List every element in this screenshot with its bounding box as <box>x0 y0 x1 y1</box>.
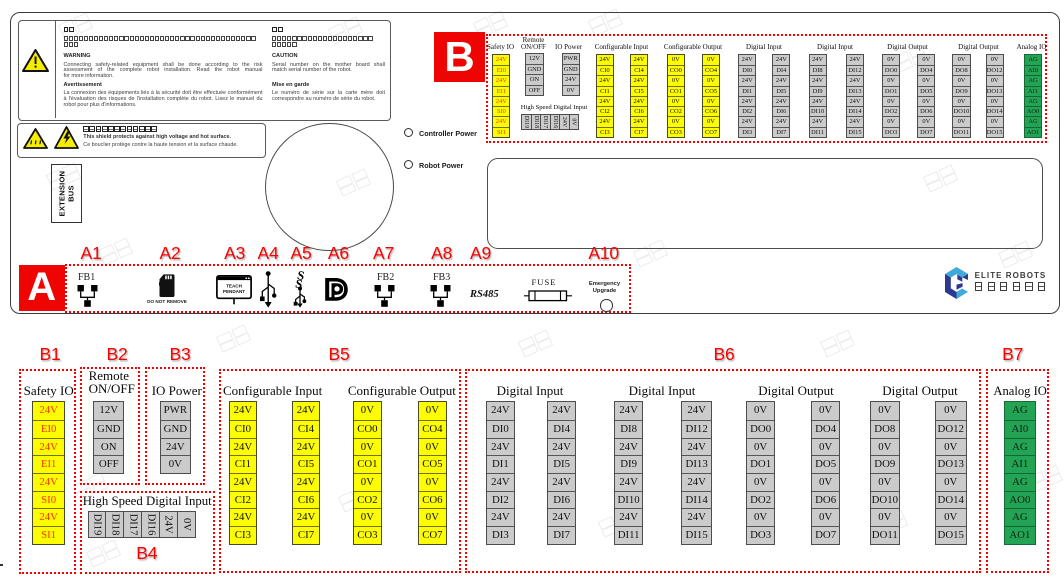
svg-text:PENDANT: PENDANT <box>222 289 244 294</box>
svg-text:TEACH: TEACH <box>226 283 243 288</box>
